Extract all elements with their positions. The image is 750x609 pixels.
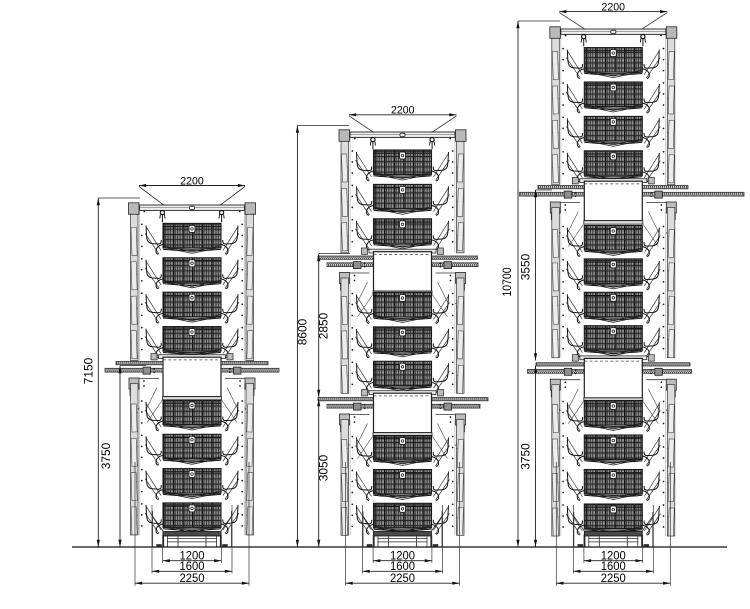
svg-text:1600: 1600 <box>601 561 626 573</box>
svg-text:3550: 3550 <box>519 253 533 280</box>
svg-text:3050: 3050 <box>316 454 330 481</box>
svg-text:7150: 7150 <box>81 357 95 384</box>
svg-text:10700: 10700 <box>500 267 514 296</box>
svg-text:2250: 2250 <box>601 573 626 585</box>
svg-text:2250: 2250 <box>390 573 415 585</box>
svg-text:1600: 1600 <box>180 561 205 573</box>
svg-text:2850: 2850 <box>316 312 330 339</box>
svg-text:2200: 2200 <box>391 105 415 117</box>
svg-text:3750: 3750 <box>519 443 533 470</box>
svg-text:2200: 2200 <box>180 175 204 187</box>
svg-text:8600: 8600 <box>296 318 310 345</box>
svg-text:2200: 2200 <box>602 1 626 13</box>
svg-text:1600: 1600 <box>390 561 415 573</box>
svg-text:2250: 2250 <box>180 573 205 585</box>
svg-text:3750: 3750 <box>99 442 113 469</box>
